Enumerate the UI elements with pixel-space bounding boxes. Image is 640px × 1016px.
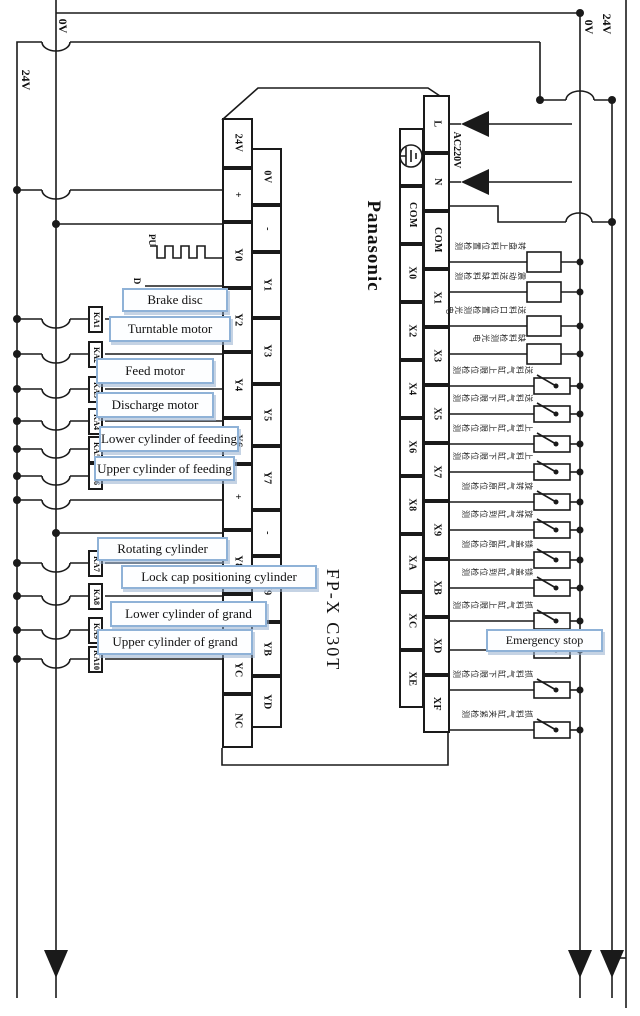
label-brake-disc: Brake disc	[122, 288, 228, 312]
ac220v-label: AC220V	[449, 128, 463, 172]
terminal-xa: XA	[399, 534, 424, 592]
terminal-x1: X1	[423, 269, 450, 327]
terminal-x0: X0	[399, 244, 424, 302]
terminal-xf: XF	[423, 675, 450, 733]
terminal-nc: NC	[222, 694, 253, 748]
terminal-y5: Y5	[251, 384, 282, 446]
sensor-desc-x6: 上料气缸上限位检测	[452, 419, 532, 437]
rail-end-arrow-icon	[568, 950, 592, 978]
plc-model: FP-X C30T	[322, 520, 344, 720]
label-feed-motor: Feed motor	[96, 358, 214, 384]
terminal-y3: Y3	[251, 318, 282, 384]
rail-end-arrow-icon	[600, 950, 624, 978]
sensor-desc-x1: 震动送料缺料检测	[452, 267, 525, 285]
direction-signal-label: D	[131, 273, 143, 289]
right-0v-label: 0V	[582, 12, 596, 42]
terminal-com-left: COM	[399, 186, 424, 244]
sensor-desc-x2: 送料口位置检测光电	[452, 301, 525, 319]
terminal-out-minus2: -	[251, 510, 282, 556]
wiring-lines	[0, 0, 640, 1016]
sensor-desc-x7: 上料气缸下限位检测	[452, 447, 532, 465]
sensor-desc-x4: 送料气缸上限位检测	[452, 361, 532, 379]
sensor-desc-xa: 锁盖气缸原位检测	[452, 535, 532, 553]
terminal-out-plus1: +	[222, 168, 253, 222]
terminal-ground	[399, 128, 424, 186]
label-lock-cap-positioning-cylinder: Lock cap positioning cylinder	[121, 565, 317, 589]
label-upper-cylinder-grand: Upper cylinder of grand	[97, 629, 253, 655]
left-24v-label: 24V	[19, 63, 33, 97]
label-emergency-stop: Emergency stop	[486, 629, 603, 652]
label-upper-cylinder-feeding: Upper cylinder of feeding	[94, 456, 235, 481]
label-rotating-cylinder: Rotating cylinder	[97, 537, 228, 561]
ac-neutral-arrow-icon	[461, 169, 489, 195]
terminal-y7: Y7	[251, 446, 282, 510]
terminal-y4: Y4	[222, 352, 253, 418]
plc-wiring-diagram: 0V 24V 0V 24V 24V + Y0 Y2 Y4 Y6 + Y8 YA …	[0, 0, 640, 1016]
terminal-x9: X9	[423, 501, 450, 559]
sensor-desc-xf: 抓料气缸夹紧检测	[452, 705, 532, 723]
terminal-out-0v: 0V	[251, 148, 282, 205]
junction-dots	[13, 9, 624, 978]
terminal-y1: Y1	[251, 252, 282, 318]
sensor-desc-x0: 转盘上料位置检测	[452, 237, 525, 255]
ac-line-arrow-icon	[461, 111, 489, 137]
sensor-desc-x8: 旋转气缸原位检测	[452, 477, 532, 495]
terminal-yb: YB	[251, 622, 282, 676]
plc-brand: Panasonic	[363, 161, 385, 331]
terminal-l: L	[423, 95, 450, 153]
terminal-y0: Y0	[222, 222, 253, 288]
sensor-desc-x9: 旋转气缸到位检测	[452, 505, 532, 523]
terminal-x7: X7	[423, 443, 450, 501]
terminal-x8: X8	[399, 476, 424, 534]
terminal-n: N	[423, 153, 450, 211]
sensor-desc-xc: 抓料气缸上限位检测	[452, 596, 532, 614]
sensor-desc-xe: 抓料气缸下限位检测	[452, 665, 532, 683]
terminal-out-minus1: -	[251, 205, 282, 252]
sensor-desc-x3: 缺料检测光电	[452, 329, 525, 347]
right-24v-label: 24V	[600, 7, 614, 41]
label-turntable-motor: Turntable motor	[109, 316, 231, 342]
pulse-signal-label: PU	[146, 230, 158, 250]
label-lower-cylinder-feeding: Lower cylinder of feeding	[99, 426, 239, 452]
terminal-x3: X3	[423, 327, 450, 385]
relay-ka1: KA1	[88, 306, 103, 333]
sensor-desc-xb: 锁盖气缸到位检测	[452, 563, 532, 581]
terminal-xc: XC	[399, 592, 424, 650]
terminal-xd: XD	[423, 617, 450, 675]
terminal-xb: XB	[423, 559, 450, 617]
rail-end-arrow-icon	[44, 950, 68, 978]
terminal-x5: X5	[423, 385, 450, 443]
terminal-xe: XE	[399, 650, 424, 708]
sensor-desc-x5: 送料气缸下限位检测	[452, 389, 532, 407]
terminal-com-right: COM	[423, 211, 450, 269]
label-discharge-motor: Discharge motor	[96, 392, 214, 418]
terminal-x4: X4	[399, 360, 424, 418]
terminal-out-24v: 24V	[222, 118, 253, 168]
terminal-x6: X6	[399, 418, 424, 476]
left-0v-label: 0V	[56, 11, 70, 41]
label-lower-cylinder-grand: Lower cylinder of grand	[110, 601, 267, 627]
terminal-yd: YD	[251, 676, 282, 728]
terminal-x2: X2	[399, 302, 424, 360]
relay-ka8: KA8	[88, 583, 103, 610]
